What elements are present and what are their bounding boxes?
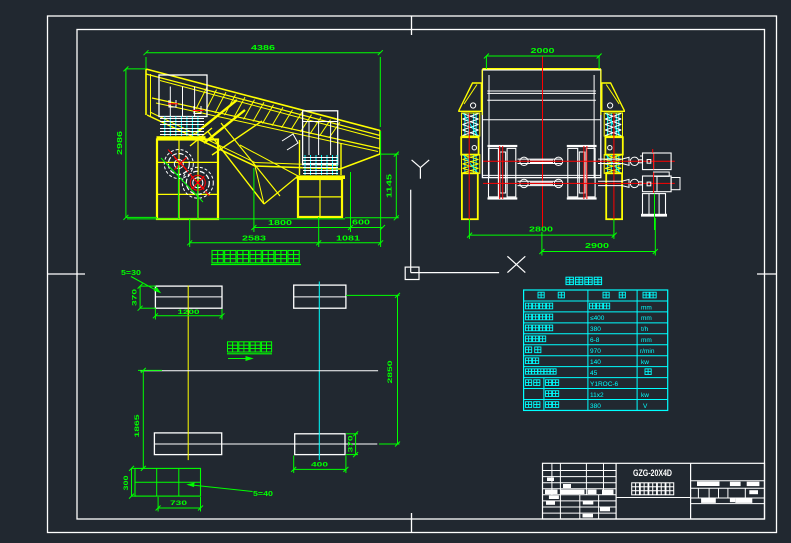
svg-text:1145: 1145 [387, 174, 394, 198]
svg-text:mm: mm [641, 315, 652, 322]
svg-text:kw: kw [641, 392, 649, 399]
svg-text:GZG-20X4D: GZG-20X4D [633, 468, 672, 479]
svg-text:2800: 2800 [529, 227, 553, 234]
svg-text:380: 380 [590, 403, 601, 410]
svg-text:2000: 2000 [531, 48, 555, 55]
svg-text:4386: 4386 [251, 45, 275, 52]
svg-text:2900: 2900 [585, 243, 609, 250]
svg-text:370: 370 [348, 435, 355, 453]
svg-text:Y1ROC-6: Y1ROC-6 [590, 381, 619, 388]
svg-text:970: 970 [590, 348, 601, 355]
svg-text:1865: 1865 [134, 414, 141, 438]
svg-text:mm: mm [641, 304, 652, 311]
svg-text:t/h: t/h [641, 326, 649, 333]
svg-text:≤400: ≤400 [590, 315, 605, 322]
svg-text:r/min: r/min [640, 348, 655, 355]
svg-text:11x2: 11x2 [590, 392, 604, 399]
svg-text:5=30: 5=30 [121, 270, 141, 277]
svg-text:370: 370 [132, 288, 139, 306]
svg-text:380: 380 [590, 326, 601, 333]
svg-text:kw: kw [641, 359, 649, 366]
svg-text:2850: 2850 [387, 360, 394, 384]
svg-text:1800: 1800 [268, 220, 292, 227]
svg-text:2986: 2986 [117, 131, 124, 155]
svg-text:730: 730 [170, 500, 188, 507]
svg-text:1081: 1081 [336, 236, 360, 243]
svg-text:V: V [643, 403, 648, 410]
svg-text:45: 45 [590, 370, 598, 377]
svg-text:5=40: 5=40 [253, 491, 273, 498]
svg-text:2583: 2583 [242, 236, 266, 243]
svg-text:1200: 1200 [178, 309, 201, 316]
svg-text:300: 300 [124, 475, 130, 491]
svg-text:140: 140 [590, 359, 601, 366]
svg-text:mm: mm [641, 337, 652, 344]
svg-text:6-8: 6-8 [590, 337, 600, 344]
svg-text:600: 600 [352, 220, 370, 227]
svg-text:400: 400 [311, 462, 329, 469]
